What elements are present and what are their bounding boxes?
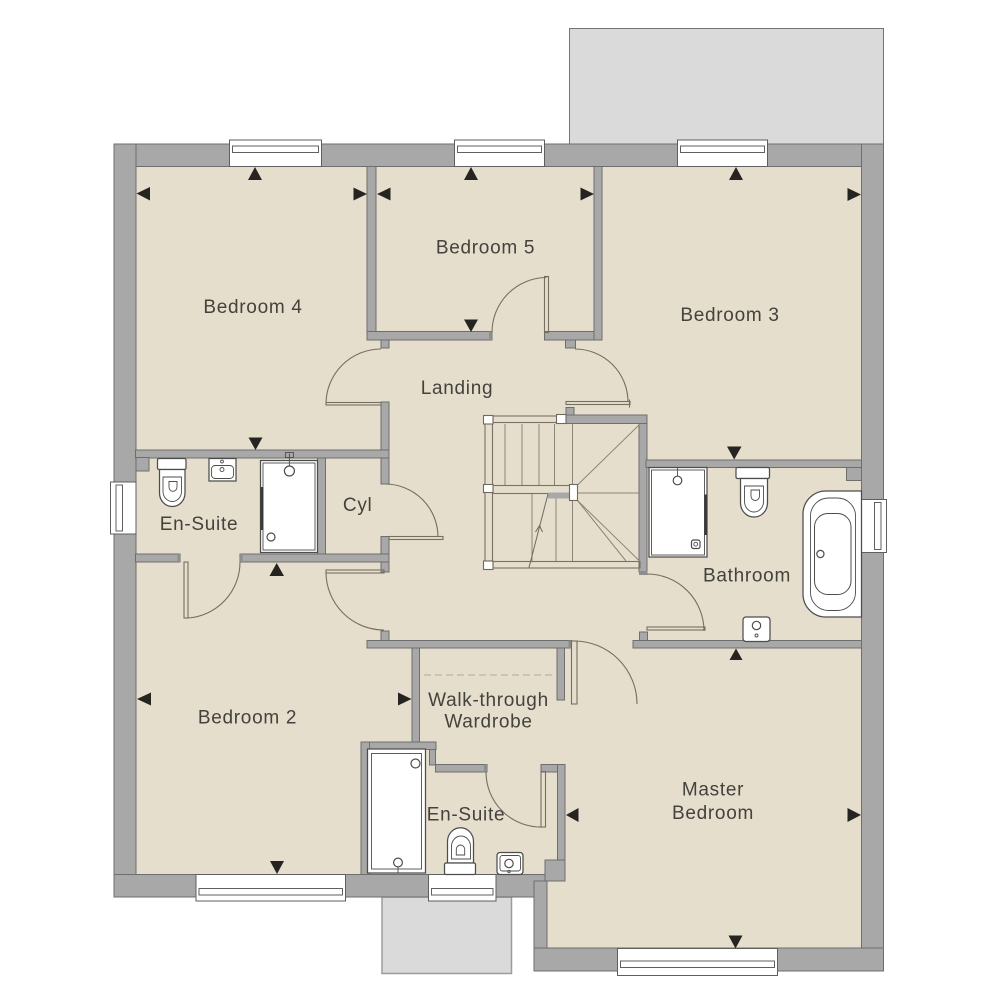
svg-text:En-Suite: En-Suite bbox=[427, 805, 505, 826]
svg-text:Bedroom 5: Bedroom 5 bbox=[436, 238, 535, 259]
svg-text:Bedroom: Bedroom bbox=[672, 803, 754, 824]
svg-text:Bathroom: Bathroom bbox=[703, 566, 791, 587]
svg-text:Bedroom 3: Bedroom 3 bbox=[680, 305, 779, 326]
svg-text:Bedroom 2: Bedroom 2 bbox=[198, 707, 297, 728]
svg-text:Cyl: Cyl bbox=[343, 495, 373, 516]
svg-text:Wardrobe: Wardrobe bbox=[444, 712, 532, 733]
svg-text:En-Suite: En-Suite bbox=[160, 514, 238, 535]
svg-text:Master: Master bbox=[682, 780, 744, 801]
svg-text:Walk-through: Walk-through bbox=[428, 690, 549, 711]
svg-text:Bedroom 4: Bedroom 4 bbox=[203, 297, 302, 318]
svg-text:Landing: Landing bbox=[421, 378, 494, 399]
